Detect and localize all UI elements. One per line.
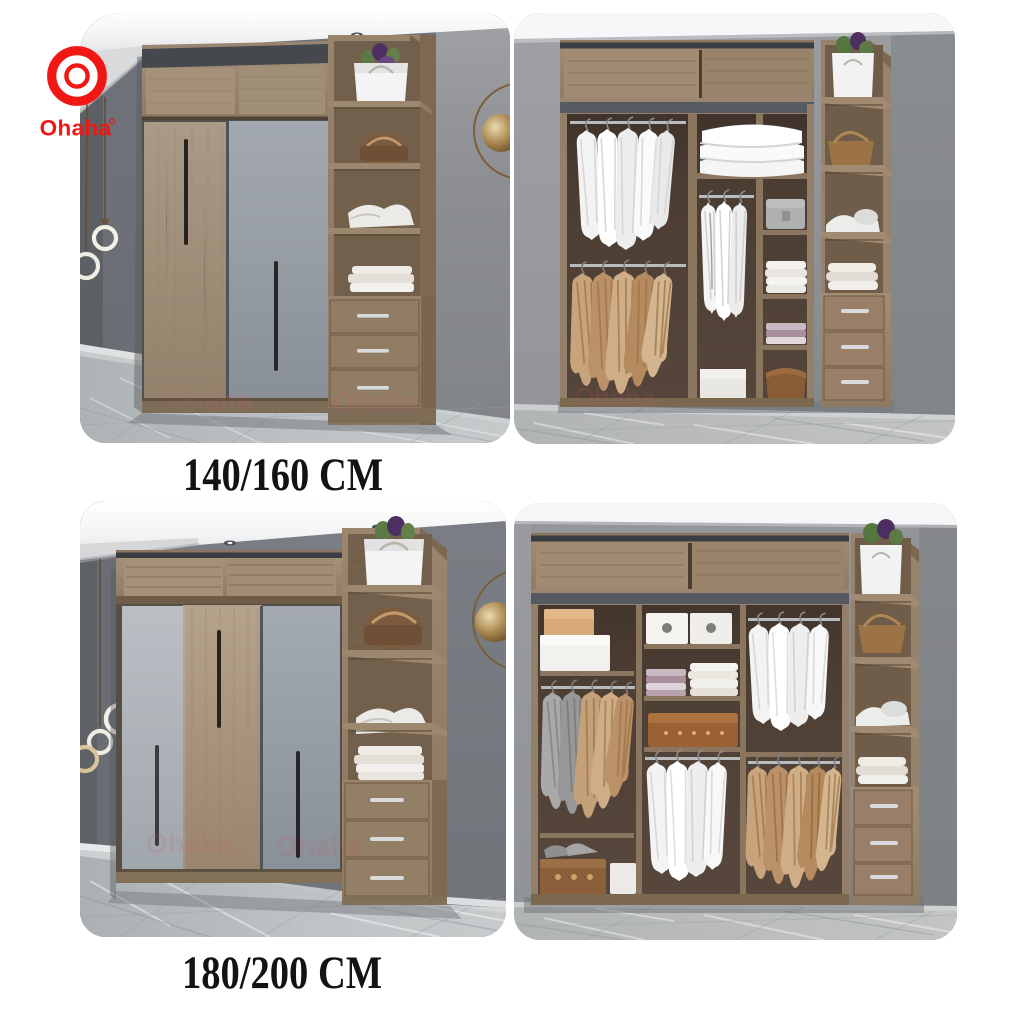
svg-text:Ohaha: Ohaha bbox=[276, 831, 364, 862]
svg-text:Ohaha: Ohaha bbox=[40, 116, 112, 141]
svg-text:Ohaha: Ohaha bbox=[165, 384, 253, 415]
svg-text:Ohaha: Ohaha bbox=[146, 828, 234, 859]
svg-text:Ohaha: Ohaha bbox=[574, 382, 655, 412]
svg-text:Ohaha: Ohaha bbox=[332, 387, 420, 418]
